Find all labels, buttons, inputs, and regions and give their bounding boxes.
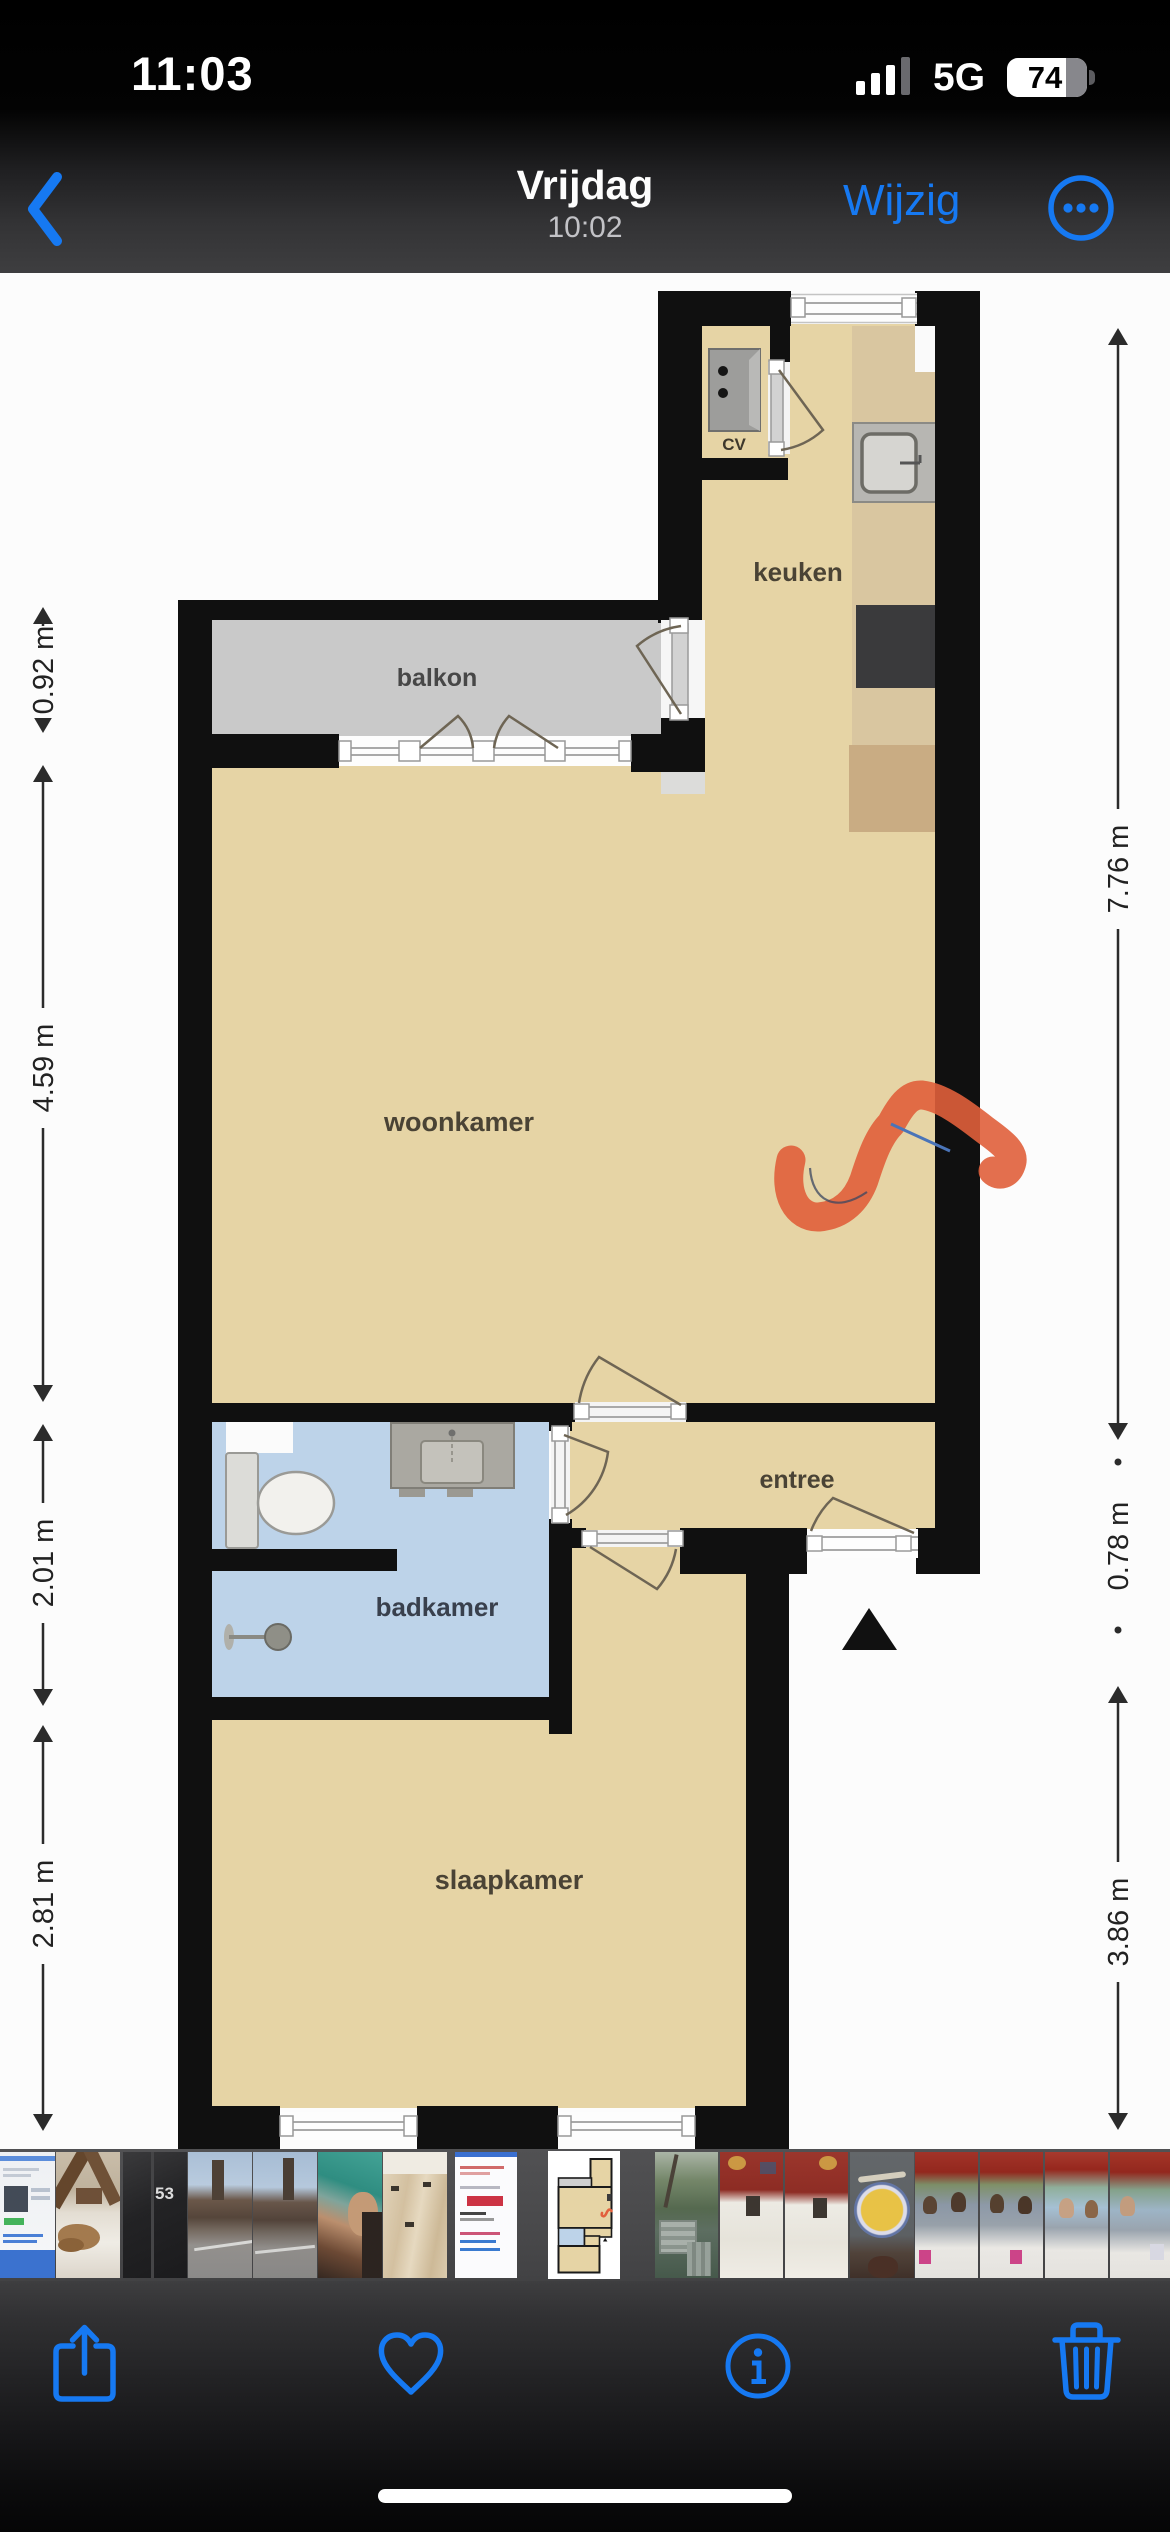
svg-text:woonkamer: woonkamer (383, 1107, 535, 1137)
svg-text:entree: entree (759, 1466, 834, 1494)
svg-text:keuken: keuken (753, 557, 843, 587)
svg-text:badkamer: badkamer (376, 1592, 499, 1622)
svg-text:balkon: balkon (397, 664, 478, 692)
svg-text:0.78 m: 0.78 m (1103, 1502, 1135, 1591)
svg-text:4.59 m: 4.59 m (28, 1024, 60, 1113)
svg-text:0.92 m: 0.92 m (28, 626, 60, 715)
svg-text:CV: CV (722, 435, 746, 454)
svg-text:7.76 m: 7.76 m (1103, 825, 1135, 914)
svg-text:3.86 m: 3.86 m (1103, 1878, 1135, 1967)
svg-text:slaapkamer: slaapkamer (435, 1865, 584, 1895)
svg-text:2.01 m: 2.01 m (28, 1519, 60, 1608)
svg-text:2.81 m: 2.81 m (28, 1860, 60, 1949)
